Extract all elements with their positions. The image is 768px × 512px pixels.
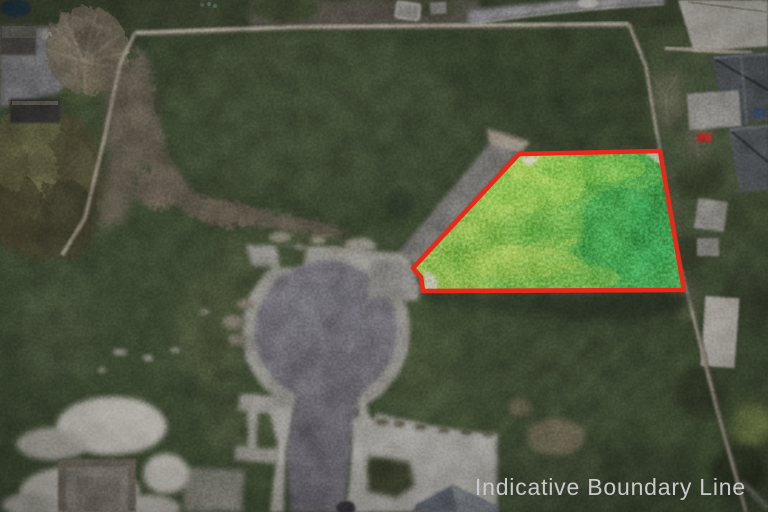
svg-text:Indicative Boundary Line: Indicative Boundary Line bbox=[475, 474, 746, 500]
